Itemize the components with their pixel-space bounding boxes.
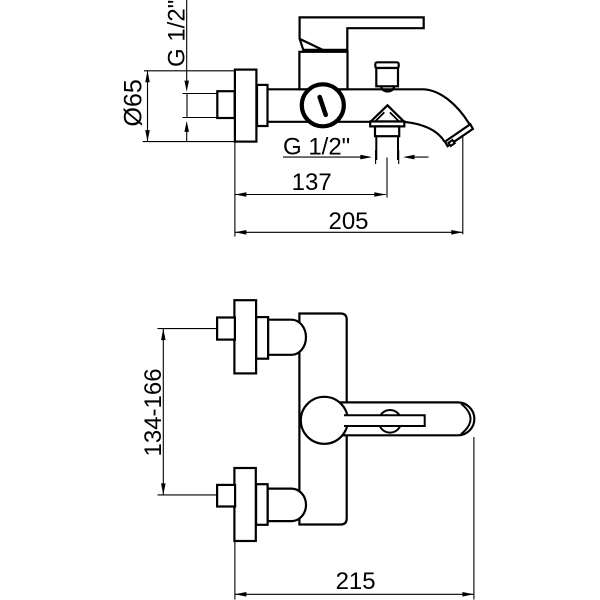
svg-text:Ø65: Ø65 xyxy=(120,79,148,126)
svg-text:134-166: 134-166 xyxy=(140,368,167,456)
svg-text:137: 137 xyxy=(292,169,332,196)
svg-text:205: 205 xyxy=(328,208,368,235)
svg-text:G 1/2": G 1/2" xyxy=(283,133,350,160)
svg-text:215: 215 xyxy=(336,568,376,595)
svg-text:G 1/2": G 1/2" xyxy=(164,0,191,67)
